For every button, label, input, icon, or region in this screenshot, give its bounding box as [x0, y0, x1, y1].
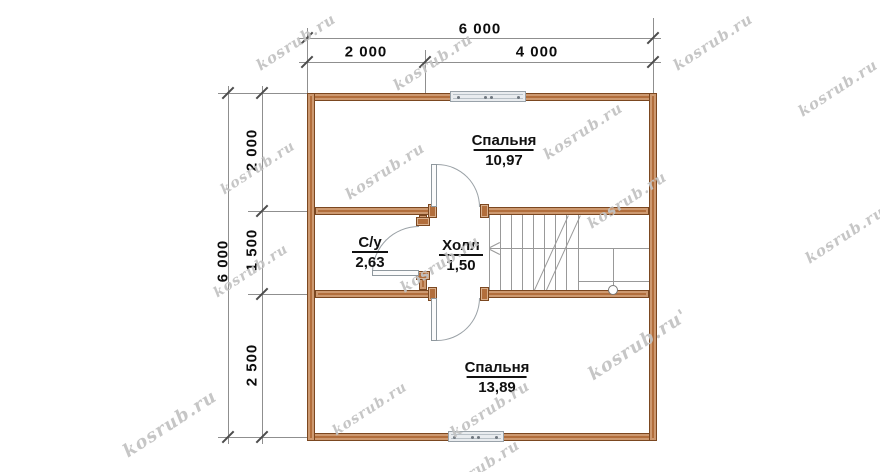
watermark-text: kosrub.ru: [119, 386, 221, 462]
exterior-wall-left: [307, 93, 315, 441]
wall-end-cap: [480, 204, 489, 218]
watermark-text: kosrub.ru': [584, 305, 691, 385]
dimension-line-top-total: [299, 38, 661, 39]
window-dot: [484, 96, 487, 99]
stair-tread: [555, 215, 556, 290]
stair-newel-line: [613, 248, 614, 285]
door-arc-bedroom2: [437, 298, 480, 341]
watermark-text: kosrub.ru: [540, 99, 626, 164]
interior-wall-bedroom2-right: [480, 290, 649, 298]
extension-line: [248, 211, 308, 212]
watermark-text: kosrub.ru: [342, 139, 428, 204]
room-area: 2,63: [352, 255, 388, 270]
watermark-text: kosrub.ru: [253, 10, 339, 75]
label-divider: [474, 149, 534, 151]
interior-wall-bedroom1-left: [315, 207, 437, 215]
stair-tread: [544, 215, 545, 290]
extension-line: [653, 18, 654, 93]
dim-top-seg1: 2 000: [345, 44, 388, 61]
window-dot: [471, 436, 474, 439]
dim-left-seg3: 2 500: [244, 344, 261, 387]
window-dot: [495, 436, 498, 439]
stair-tread: [489, 215, 490, 290]
floor-plan-canvas: 6 000 2 000 4 000 6 000 2 000 1 500 2 50…: [0, 0, 880, 472]
stair-newel-post: [608, 285, 618, 295]
extension-line: [248, 294, 308, 295]
stair-tread: [500, 215, 501, 290]
window-dot: [477, 436, 480, 439]
stair-flight-edge: [578, 215, 579, 290]
exterior-wall-right: [649, 93, 657, 441]
room-name: Спальня: [465, 360, 530, 375]
door-leaf-bedroom1: [431, 164, 437, 207]
dim-top-seg2: 4 000: [516, 44, 559, 61]
door-arc-bedroom1: [437, 164, 480, 207]
wall-end-cap: [480, 287, 489, 301]
room-area: 10,97: [472, 153, 537, 168]
dimension-line-top-segments: [299, 62, 661, 63]
window-dot: [517, 96, 520, 99]
label-divider: [467, 376, 527, 378]
room-label-bathroom: С/у 2,63: [352, 235, 388, 270]
watermark-text: kosrub.ru: [330, 379, 411, 439]
room-name: С/у: [352, 235, 388, 250]
door-leaf-bedroom2: [431, 298, 437, 341]
room-name: Спальня: [472, 133, 537, 148]
stair-tread: [522, 215, 523, 290]
stair-tread: [511, 215, 512, 290]
watermark-text: kosrub.ru: [802, 203, 880, 268]
stair-direction-line: [490, 248, 649, 249]
watermark-text: kosrub.ru: [584, 168, 670, 233]
interior-wall-bedroom2-left: [315, 290, 437, 298]
room-label-bedroom1: Спальня 10,97: [472, 133, 537, 168]
label-divider: [352, 251, 388, 253]
watermark-text: kosrub.ru: [795, 56, 880, 121]
watermark-text: kosrub.ru: [670, 10, 756, 75]
stair-tread: [566, 215, 567, 290]
stair-tread: [533, 215, 534, 290]
stair-arrowhead: [490, 249, 500, 255]
wall-end-cap: [416, 217, 430, 226]
window-dot: [457, 96, 460, 99]
window-top: [450, 91, 526, 102]
window-dot: [490, 96, 493, 99]
